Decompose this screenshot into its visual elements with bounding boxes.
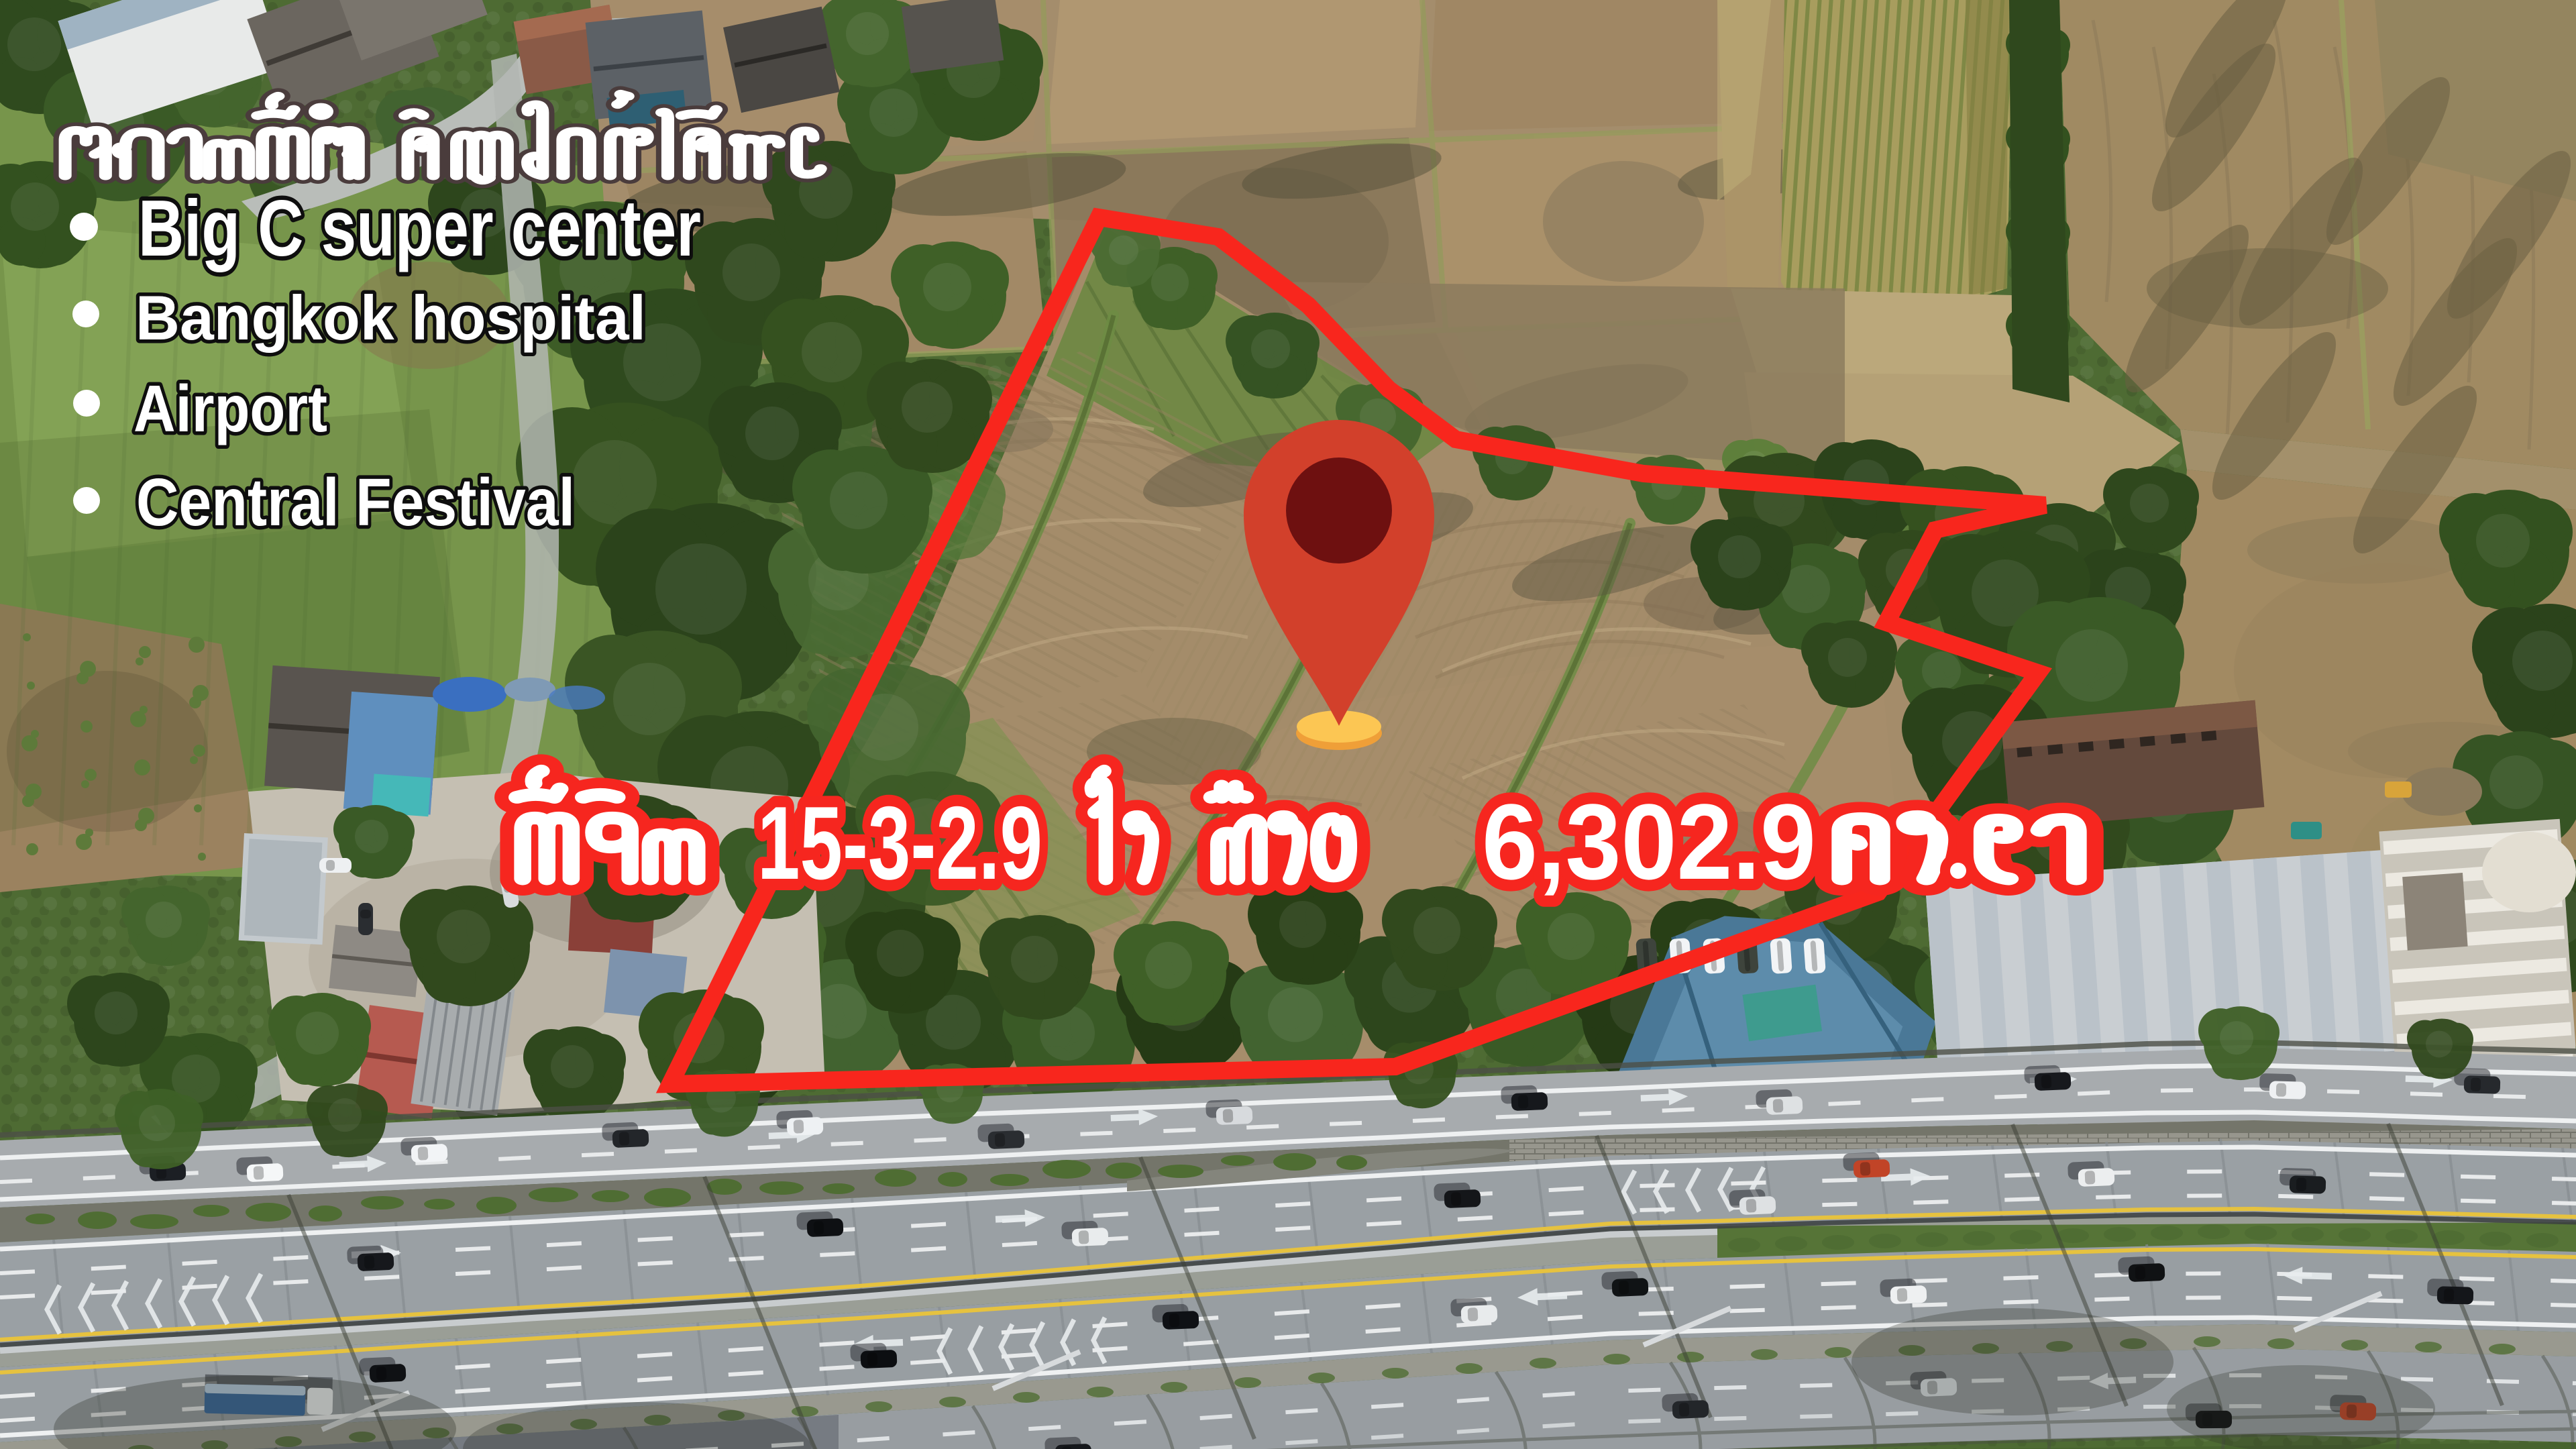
svg-text:Big C super center: Big C super center (138, 184, 701, 273)
svg-text:Bangkok hospital: Bangkok hospital (136, 282, 646, 353)
svg-text:Airport: Airport (133, 372, 327, 445)
svg-text:6,302.9: 6,302.9 (1482, 782, 1816, 902)
svg-text:15-3-2.9: 15-3-2.9 (757, 785, 1042, 901)
svg-text:Central Festival: Central Festival (136, 465, 575, 540)
